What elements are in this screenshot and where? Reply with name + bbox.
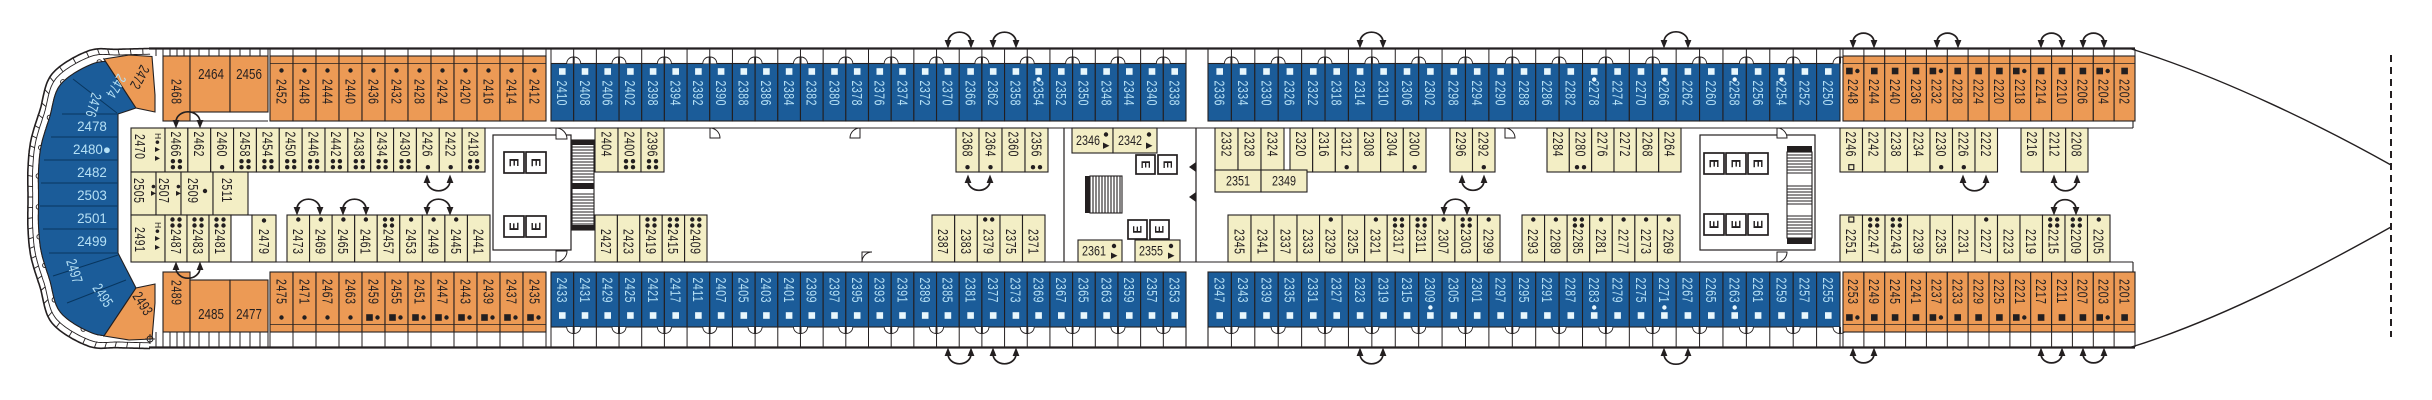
svg-text:2360: 2360 [1005, 132, 1022, 158]
svg-text:2340: 2340 [1143, 81, 1160, 107]
svg-text:2270: 2270 [1632, 81, 1649, 107]
svg-text:2332: 2332 [1218, 132, 1235, 158]
svg-text:2361: 2361 [1082, 243, 1106, 258]
svg-text:2379: 2379 [980, 229, 997, 255]
svg-text:2435: 2435 [526, 279, 543, 305]
svg-text:2371: 2371 [1025, 229, 1042, 255]
svg-text:2298: 2298 [1445, 81, 1462, 107]
svg-text:2321: 2321 [1367, 229, 1384, 255]
svg-text:2482: 2482 [77, 165, 107, 180]
svg-text:2418: 2418 [465, 132, 482, 158]
svg-text:2272: 2272 [1617, 132, 1634, 158]
svg-text:2378: 2378 [849, 81, 866, 107]
svg-text:2391: 2391 [894, 278, 911, 304]
svg-text:2337: 2337 [1277, 229, 1294, 255]
svg-text:2309: 2309 [1422, 278, 1439, 304]
svg-text:2354: 2354 [1030, 81, 1047, 107]
svg-text:2212: 2212 [2046, 132, 2063, 158]
svg-text:2457: 2457 [380, 229, 397, 255]
svg-text:2339: 2339 [1258, 278, 1275, 304]
svg-text:E: E [1707, 220, 1722, 229]
svg-text:2305: 2305 [1445, 278, 1462, 304]
svg-text:2250: 2250 [1820, 81, 1837, 107]
svg-text:2470: 2470 [131, 134, 148, 160]
svg-text:2280: 2280 [1572, 132, 1589, 158]
svg-text:E: E [1751, 220, 1766, 229]
svg-text:2352: 2352 [1053, 81, 1070, 107]
svg-text:2386: 2386 [758, 81, 775, 107]
svg-text:E: E [507, 222, 522, 231]
svg-text:2450: 2450 [282, 132, 299, 158]
svg-text:2249: 2249 [1866, 279, 1883, 305]
svg-text:2359: 2359 [1121, 278, 1138, 304]
svg-text:2447: 2447 [434, 279, 451, 305]
svg-text:2466: 2466 [168, 132, 185, 158]
svg-text:2291: 2291 [1539, 278, 1556, 304]
svg-text:2385: 2385 [939, 278, 956, 304]
svg-text:2511: 2511 [218, 178, 235, 203]
svg-text:2312: 2312 [1338, 132, 1355, 158]
svg-text:2444: 2444 [319, 79, 336, 105]
svg-text:2319: 2319 [1375, 278, 1392, 304]
svg-text:2424: 2424 [434, 79, 451, 105]
svg-text:2467: 2467 [319, 279, 336, 305]
svg-text:2318: 2318 [1328, 81, 1345, 107]
svg-text:2416: 2416 [480, 79, 497, 105]
svg-text:2423: 2423 [620, 229, 637, 255]
svg-text:2218: 2218 [2012, 79, 2029, 105]
svg-text:2438: 2438 [351, 132, 368, 158]
svg-text:2442: 2442 [328, 132, 345, 158]
svg-text:2324: 2324 [1264, 132, 1281, 158]
svg-text:2417: 2417 [667, 278, 684, 304]
svg-text:2292: 2292 [1475, 132, 1492, 158]
svg-text:2399: 2399 [803, 278, 820, 304]
svg-text:2344: 2344 [1121, 81, 1138, 107]
svg-text:2293: 2293 [1525, 229, 1542, 255]
svg-text:2432: 2432 [388, 79, 405, 105]
svg-text:2351: 2351 [1226, 173, 1250, 188]
svg-text:2454: 2454 [259, 132, 276, 158]
svg-text:2214: 2214 [2032, 79, 2049, 105]
svg-text:2317: 2317 [1390, 229, 1407, 255]
svg-text:2460: 2460 [213, 132, 230, 158]
svg-text:2422: 2422 [442, 132, 459, 158]
svg-text:2390: 2390 [712, 81, 729, 107]
svg-text:2240: 2240 [1886, 79, 1903, 105]
svg-text:2310: 2310 [1375, 81, 1392, 107]
svg-text:2284: 2284 [1550, 132, 1567, 158]
svg-text:2230: 2230 [1933, 132, 1950, 158]
svg-text:2483: 2483 [189, 229, 206, 255]
svg-text:2314: 2314 [1351, 81, 1368, 107]
svg-text:2254: 2254 [1773, 81, 1790, 107]
svg-text:2455: 2455 [388, 279, 405, 305]
svg-text:2345: 2345 [1231, 229, 1248, 255]
svg-text:2253: 2253 [1845, 279, 1862, 305]
svg-text:2235: 2235 [1933, 229, 1950, 255]
svg-text:H●▲▲: H●▲▲ [153, 133, 163, 163]
svg-text:2271: 2271 [1656, 278, 1673, 304]
svg-text:2269: 2269 [1660, 229, 1677, 255]
svg-text:2220: 2220 [1991, 79, 2008, 105]
svg-text:2261: 2261 [1749, 278, 1766, 304]
svg-text:2276: 2276 [1594, 132, 1611, 158]
svg-text:2283: 2283 [1586, 278, 1603, 304]
svg-text:E: E [507, 158, 522, 167]
svg-text:2349: 2349 [1272, 173, 1296, 188]
svg-text:2329: 2329 [1322, 229, 1339, 255]
svg-text:2382: 2382 [803, 81, 820, 107]
svg-text:2367: 2367 [1053, 278, 1070, 304]
svg-text:2315: 2315 [1398, 278, 1415, 304]
svg-text:2394: 2394 [667, 81, 684, 107]
svg-text:2503: 2503 [77, 188, 107, 203]
svg-text:2372: 2372 [917, 81, 934, 107]
svg-text:2221: 2221 [2012, 279, 2029, 305]
svg-text:2282: 2282 [1562, 81, 1579, 107]
svg-text:2408: 2408 [576, 81, 593, 107]
svg-text:2449: 2449 [425, 229, 442, 255]
svg-text:2388: 2388 [735, 81, 752, 107]
svg-text:2289: 2289 [1547, 229, 1564, 255]
svg-text:2258: 2258 [1726, 81, 1743, 107]
svg-text:2343: 2343 [1234, 278, 1251, 304]
svg-text:2374: 2374 [894, 81, 911, 107]
svg-text:2480●: 2480● [73, 142, 111, 157]
svg-text:E: E [529, 222, 544, 231]
svg-text:2316: 2316 [1315, 132, 1332, 158]
svg-text:2443: 2443 [457, 279, 474, 305]
svg-text:2427: 2427 [598, 229, 615, 255]
svg-text:2346: 2346 [1076, 133, 1100, 148]
svg-text:2210: 2210 [2053, 79, 2070, 105]
svg-text:2479: 2479 [255, 229, 272, 255]
svg-text:2365: 2365 [1075, 278, 1092, 304]
svg-text:2308: 2308 [1361, 132, 1378, 158]
svg-text:2245: 2245 [1886, 279, 1903, 305]
svg-text:2384: 2384 [780, 81, 797, 107]
svg-text:2462: 2462 [191, 132, 208, 158]
svg-text:2440: 2440 [342, 79, 359, 105]
svg-text:2278: 2278 [1586, 81, 1603, 107]
svg-text:2368: 2368 [959, 132, 976, 158]
svg-text:2348: 2348 [1098, 81, 1115, 107]
svg-text:2477: 2477 [236, 306, 262, 323]
svg-text:2231: 2231 [1955, 229, 1972, 255]
svg-text:2320: 2320 [1293, 132, 1310, 158]
svg-text:2410: 2410 [554, 81, 571, 107]
svg-text:2281: 2281 [1592, 229, 1609, 255]
svg-text:2403: 2403 [758, 278, 775, 304]
svg-text:2387: 2387 [935, 229, 952, 255]
svg-text:2406: 2406 [599, 81, 616, 107]
svg-text:2330: 2330 [1258, 81, 1275, 107]
svg-text:2262: 2262 [1679, 81, 1696, 107]
svg-text:2268: 2268 [1639, 132, 1656, 158]
svg-text:2347: 2347 [1211, 278, 1228, 304]
svg-text:2325: 2325 [1345, 229, 1362, 255]
svg-text:2464: 2464 [198, 66, 224, 83]
svg-text:2288: 2288 [1515, 81, 1532, 107]
svg-text:2202: 2202 [2116, 79, 2133, 105]
svg-text:2430: 2430 [396, 132, 413, 158]
svg-text:2366: 2366 [962, 81, 979, 107]
svg-text:2333: 2333 [1300, 229, 1317, 255]
svg-text:2456: 2456 [236, 66, 262, 83]
svg-text:2223: 2223 [2000, 229, 2017, 255]
svg-text:2233: 2233 [1949, 279, 1966, 305]
svg-text:2256: 2256 [1749, 81, 1766, 107]
svg-text:2336: 2336 [1211, 81, 1228, 107]
svg-text:2501: 2501 [77, 211, 107, 226]
svg-text:2421: 2421 [644, 278, 661, 304]
svg-text:2237: 2237 [1928, 279, 1945, 305]
svg-text:2326: 2326 [1281, 81, 1298, 107]
svg-text:2445: 2445 [448, 229, 465, 255]
svg-text:2203: 2203 [2095, 279, 2112, 305]
svg-text:2302: 2302 [1422, 81, 1439, 107]
svg-text:2246: 2246 [1843, 132, 1860, 158]
svg-text:2234: 2234 [1910, 132, 1927, 158]
svg-text:E: E [1729, 159, 1744, 168]
svg-text:2209: 2209 [2068, 229, 2085, 255]
svg-text:2201: 2201 [2116, 279, 2133, 305]
svg-text:E: E [1153, 225, 1167, 233]
svg-text:2411: 2411 [690, 278, 707, 303]
svg-text:2429: 2429 [599, 278, 616, 304]
svg-text:2353: 2353 [1166, 278, 1183, 304]
svg-text:2434: 2434 [373, 132, 390, 158]
svg-text:2453: 2453 [402, 229, 419, 255]
svg-text:2420: 2420 [457, 79, 474, 105]
svg-text:2461: 2461 [357, 229, 374, 255]
svg-text:2264: 2264 [1661, 132, 1678, 158]
svg-text:2362: 2362 [985, 81, 1002, 107]
svg-text:2436: 2436 [365, 79, 382, 105]
svg-text:2252: 2252 [1796, 81, 1813, 107]
svg-text:2238: 2238 [1888, 132, 1905, 158]
svg-text:2357: 2357 [1143, 278, 1160, 304]
svg-text:2300: 2300 [1406, 132, 1423, 158]
svg-text:2227: 2227 [1978, 229, 1995, 255]
svg-text:2207: 2207 [2074, 279, 2091, 305]
svg-text:2229: 2229 [1970, 279, 1987, 305]
svg-text:2260: 2260 [1703, 81, 1720, 107]
svg-text:2334: 2334 [1234, 81, 1251, 107]
svg-text:2398: 2398 [644, 81, 661, 107]
svg-text:2381: 2381 [962, 278, 979, 304]
svg-text:2396: 2396 [644, 132, 661, 158]
svg-text:2383: 2383 [957, 229, 974, 255]
svg-text:2468: 2468 [168, 79, 185, 105]
svg-text:2259: 2259 [1773, 278, 1790, 304]
svg-text:2216: 2216 [2024, 132, 2041, 158]
svg-text:2244: 2244 [1866, 79, 1883, 105]
svg-text:2338: 2338 [1166, 81, 1183, 107]
svg-text:2441: 2441 [470, 229, 487, 255]
svg-text:2375: 2375 [1003, 229, 1020, 255]
svg-text:2265: 2265 [1703, 278, 1720, 304]
svg-text:2274: 2274 [1609, 81, 1626, 107]
svg-text:2222: 2222 [1978, 132, 1995, 158]
svg-text:2433: 2433 [554, 278, 571, 304]
svg-text:2463: 2463 [342, 279, 359, 305]
svg-text:2266: 2266 [1656, 81, 1673, 107]
svg-text:2485: 2485 [198, 306, 224, 323]
svg-text:2481: 2481 [211, 229, 228, 255]
svg-text:2204: 2204 [2095, 79, 2112, 105]
svg-text:2275: 2275 [1632, 278, 1649, 304]
svg-text:2297: 2297 [1492, 278, 1509, 304]
svg-text:2473: 2473 [290, 229, 307, 255]
svg-text:2404: 2404 [598, 132, 615, 158]
svg-text:2342: 2342 [1118, 133, 1142, 148]
svg-text:E: E [529, 158, 544, 167]
svg-text:2505: 2505 [130, 178, 147, 204]
svg-text:2407: 2407 [712, 278, 729, 304]
svg-text:2267: 2267 [1679, 278, 1696, 304]
svg-text:2380: 2380 [826, 81, 843, 107]
svg-text:2287: 2287 [1562, 278, 1579, 304]
svg-text:2487: 2487 [167, 229, 184, 255]
svg-text:2412: 2412 [526, 79, 543, 105]
svg-text:E: E [1707, 159, 1722, 168]
svg-text:2364: 2364 [982, 132, 999, 158]
svg-text:2307: 2307 [1435, 229, 1452, 255]
svg-text:2373: 2373 [1007, 278, 1024, 304]
svg-text:2219: 2219 [2023, 229, 2040, 255]
svg-text:2389: 2389 [917, 278, 934, 304]
svg-text:2459: 2459 [365, 279, 382, 305]
svg-text:2277: 2277 [1615, 229, 1632, 255]
svg-text:2509: 2509 [184, 178, 201, 204]
svg-text:2306: 2306 [1398, 81, 1415, 107]
svg-text:2475: 2475 [273, 279, 290, 305]
svg-text:2247: 2247 [1865, 229, 1882, 255]
svg-text:2296: 2296 [1453, 132, 1470, 158]
svg-text:2226: 2226 [1955, 132, 1972, 158]
svg-text:2426: 2426 [419, 132, 436, 158]
svg-text:2241: 2241 [1907, 279, 1924, 305]
svg-text:2294: 2294 [1469, 81, 1486, 107]
svg-text:2225: 2225 [1991, 279, 2008, 305]
svg-text:2248: 2248 [1845, 79, 1862, 105]
svg-text:2273: 2273 [1637, 229, 1654, 255]
svg-text:2341: 2341 [1254, 229, 1271, 255]
svg-text:2232: 2232 [1928, 79, 1945, 105]
svg-text:2255: 2255 [1820, 278, 1837, 304]
svg-text:2448: 2448 [296, 79, 313, 105]
svg-text:2331: 2331 [1305, 278, 1322, 304]
svg-text:2491: 2491 [131, 227, 148, 253]
svg-text:2400: 2400 [621, 132, 638, 158]
svg-text:2415: 2415 [665, 229, 682, 255]
svg-text:2356: 2356 [1028, 132, 1045, 158]
svg-text:2205: 2205 [2090, 229, 2107, 255]
svg-text:2328: 2328 [1241, 132, 1258, 158]
svg-text:2431: 2431 [576, 278, 593, 304]
svg-text:2228: 2228 [1949, 79, 1966, 105]
svg-text:2469: 2469 [312, 229, 329, 255]
svg-text:2392: 2392 [690, 81, 707, 107]
svg-text:2376: 2376 [871, 81, 888, 107]
svg-text:2397: 2397 [826, 278, 843, 304]
svg-text:2327: 2327 [1328, 278, 1345, 304]
svg-text:2419: 2419 [642, 229, 659, 255]
svg-text:2414: 2414 [503, 79, 520, 105]
svg-text:2239: 2239 [1910, 229, 1927, 255]
svg-text:H●▲▲: H●▲▲ [153, 222, 163, 252]
svg-text:2478: 2478 [77, 119, 107, 134]
svg-text:2458: 2458 [236, 132, 253, 158]
svg-text:2437: 2437 [503, 279, 520, 305]
svg-text:2285: 2285 [1570, 229, 1587, 255]
svg-text:2446: 2446 [305, 132, 322, 158]
svg-text:2208: 2208 [2068, 132, 2085, 158]
svg-text:2303: 2303 [1458, 229, 1475, 255]
svg-text:2402: 2402 [622, 81, 639, 107]
svg-text:2358: 2358 [1007, 81, 1024, 107]
svg-text:2471: 2471 [296, 279, 313, 305]
svg-text:E: E [1131, 225, 1145, 233]
svg-text:2451: 2451 [411, 279, 428, 305]
svg-text:2215: 2215 [2045, 229, 2062, 255]
svg-text:2242: 2242 [1865, 132, 1882, 158]
svg-text:2405: 2405 [735, 278, 752, 304]
svg-text:2206: 2206 [2074, 79, 2091, 105]
svg-text:2335: 2335 [1281, 278, 1298, 304]
svg-text:2355: 2355 [1139, 243, 1163, 258]
svg-text:E: E [1161, 160, 1175, 168]
svg-text:2363: 2363 [1098, 278, 1115, 304]
svg-text:2236: 2236 [1907, 79, 1924, 105]
svg-text:2377: 2377 [985, 278, 1002, 304]
svg-text:E: E [1729, 220, 1744, 229]
svg-text:2311: 2311 [1412, 229, 1429, 254]
svg-text:2425: 2425 [622, 278, 639, 304]
svg-text:2263: 2263 [1726, 278, 1743, 304]
svg-text:2251: 2251 [1843, 229, 1860, 255]
svg-text:2290: 2290 [1492, 81, 1509, 107]
svg-text:2211: 2211 [2053, 279, 2070, 304]
svg-text:2452: 2452 [273, 79, 290, 105]
svg-text:2393: 2393 [871, 278, 888, 304]
svg-text:2279: 2279 [1609, 278, 1626, 304]
svg-text:2439: 2439 [480, 279, 497, 305]
svg-text:2489: 2489 [168, 280, 185, 306]
svg-text:2257: 2257 [1796, 278, 1813, 304]
svg-text:2369: 2369 [1030, 278, 1047, 304]
svg-text:2295: 2295 [1515, 278, 1532, 304]
svg-text:2301: 2301 [1469, 278, 1486, 304]
svg-text:2322: 2322 [1305, 81, 1322, 107]
svg-text:2323: 2323 [1351, 278, 1368, 304]
svg-text:2217: 2217 [2032, 279, 2049, 305]
svg-text:2507: 2507 [155, 178, 172, 204]
svg-text:2409: 2409 [687, 229, 704, 255]
svg-text:2465: 2465 [335, 229, 352, 255]
svg-text:2224: 2224 [1970, 79, 1987, 105]
svg-text:2299: 2299 [1480, 229, 1497, 255]
svg-text:2304: 2304 [1383, 132, 1400, 158]
svg-text:2243: 2243 [1888, 229, 1905, 255]
svg-text:2286: 2286 [1539, 81, 1556, 107]
svg-text:2401: 2401 [780, 278, 797, 304]
svg-text:2370: 2370 [939, 81, 956, 107]
svg-text:2428: 2428 [411, 79, 428, 105]
svg-text:2395: 2395 [849, 278, 866, 304]
